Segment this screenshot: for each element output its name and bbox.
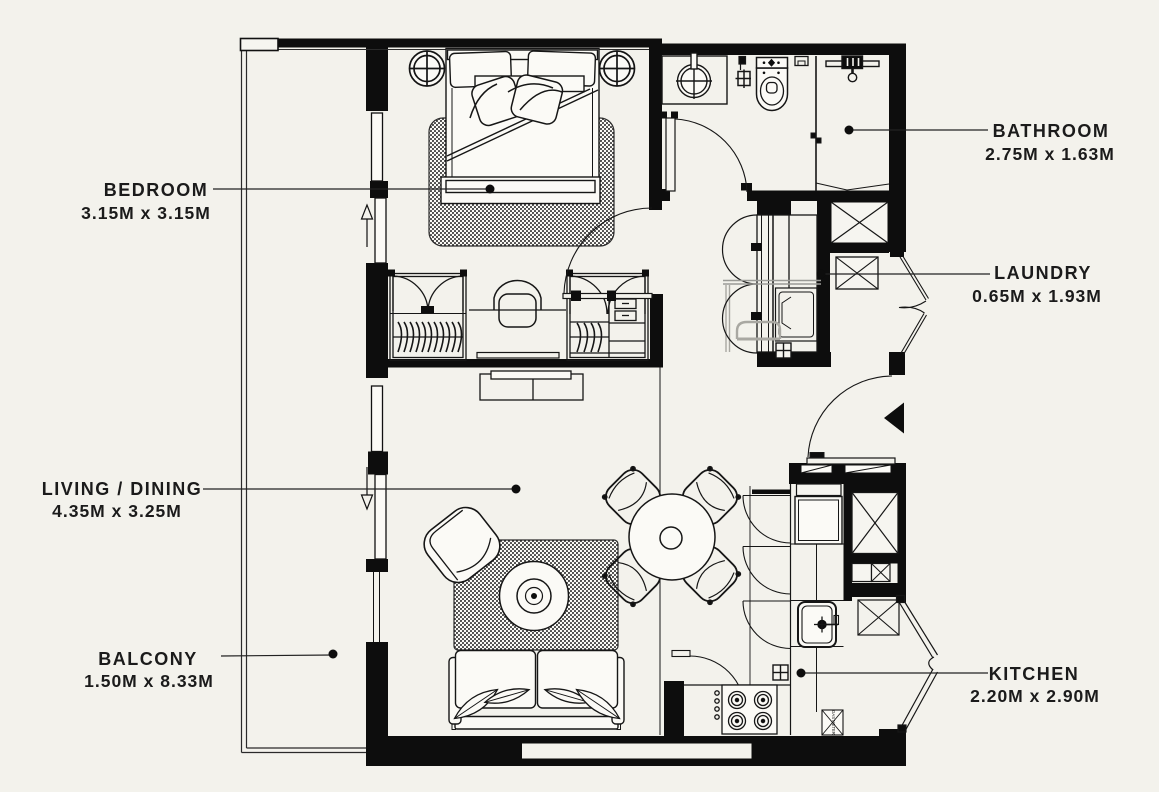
svg-text:0.65M x 1.93M: 0.65M x 1.93M xyxy=(972,286,1102,306)
svg-text:2.20M x 2.90M: 2.20M x 2.90M xyxy=(970,686,1100,706)
svg-text:GAS METER: GAS METER xyxy=(831,710,836,735)
svg-text:LIVING / DINING: LIVING / DINING xyxy=(42,479,203,499)
svg-text:BATHROOM: BATHROOM xyxy=(993,121,1110,141)
svg-text:BEDROOM: BEDROOM xyxy=(104,180,209,200)
svg-text:BALCONY: BALCONY xyxy=(98,649,198,669)
svg-text:KITCHEN: KITCHEN xyxy=(989,664,1080,684)
svg-text:2.75M x 1.63M: 2.75M x 1.63M xyxy=(985,144,1115,164)
svg-text:4.35M x 3.25M: 4.35M x 3.25M xyxy=(52,501,182,521)
svg-text:1.50M x 8.33M: 1.50M x 8.33M xyxy=(84,671,214,691)
svg-text:3.15M x 3.15M: 3.15M x 3.15M xyxy=(81,203,211,223)
svg-text:LAUNDRY: LAUNDRY xyxy=(994,263,1092,283)
